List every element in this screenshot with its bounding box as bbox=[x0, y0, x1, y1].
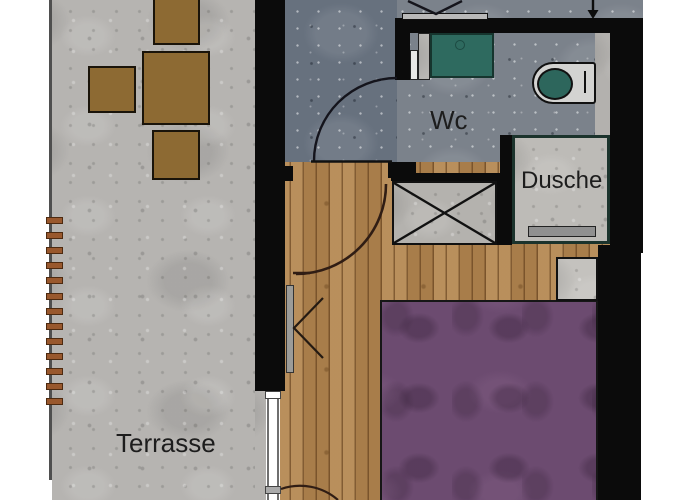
terrace-slat bbox=[46, 247, 63, 254]
terrace-table bbox=[142, 51, 210, 125]
terrace-chair-top bbox=[153, 0, 200, 45]
terrace-floor-extension bbox=[255, 391, 266, 500]
bed bbox=[380, 300, 598, 500]
nightstand bbox=[556, 257, 598, 301]
shower-left-wall bbox=[500, 135, 512, 245]
west-window-frame-left bbox=[267, 391, 269, 500]
wc-north-wall bbox=[397, 18, 643, 33]
terrace-slat bbox=[46, 353, 63, 360]
west-wall bbox=[255, 0, 285, 391]
west-window-sill bbox=[265, 486, 281, 494]
terrace-slat bbox=[46, 262, 63, 269]
east-wall-upper bbox=[610, 18, 643, 253]
west-window-frame-right bbox=[277, 391, 279, 500]
toilet bbox=[532, 62, 596, 104]
shower-label: Dusche bbox=[521, 167, 602, 195]
sink-drain-icon bbox=[455, 40, 465, 50]
entry-floor bbox=[285, 0, 397, 163]
sink-side-panel-white bbox=[410, 50, 418, 80]
sink-counter bbox=[430, 33, 494, 78]
toilet-seat bbox=[537, 68, 573, 100]
terrace-slat bbox=[46, 323, 63, 330]
terrace-slat bbox=[46, 232, 63, 239]
floor-plan: Wc Dusche Terrasse bbox=[0, 0, 700, 500]
terrace-label: Terrasse bbox=[116, 428, 216, 459]
terrace-slat bbox=[46, 308, 63, 315]
west-window bbox=[266, 391, 280, 500]
toilet-tank-line bbox=[584, 71, 586, 93]
terrace-slat bbox=[46, 398, 63, 405]
doorway-wall-stub-left bbox=[278, 166, 293, 181]
wc-label: Wc bbox=[430, 105, 468, 136]
shower-drain bbox=[528, 226, 596, 237]
shaft-box bbox=[392, 181, 497, 245]
shaft-top-wall bbox=[391, 173, 512, 181]
west-window-cap bbox=[265, 391, 281, 399]
terrace-slats bbox=[46, 217, 63, 407]
wc-west-wall bbox=[395, 18, 410, 80]
terrace-slat bbox=[46, 293, 63, 300]
terrace-chair-bottom bbox=[152, 130, 200, 180]
bedroom-window-strip bbox=[286, 285, 294, 373]
entry-door-panel bbox=[402, 13, 488, 20]
terrace-chair-left bbox=[88, 66, 136, 113]
terrace-slat bbox=[46, 338, 63, 345]
terrace-slat bbox=[46, 383, 63, 390]
terrace-slat bbox=[46, 277, 63, 284]
terrace-slat bbox=[46, 217, 63, 224]
sink-side-panel bbox=[418, 33, 430, 80]
terrace-slat bbox=[46, 368, 63, 375]
east-wall-lower bbox=[598, 245, 641, 500]
